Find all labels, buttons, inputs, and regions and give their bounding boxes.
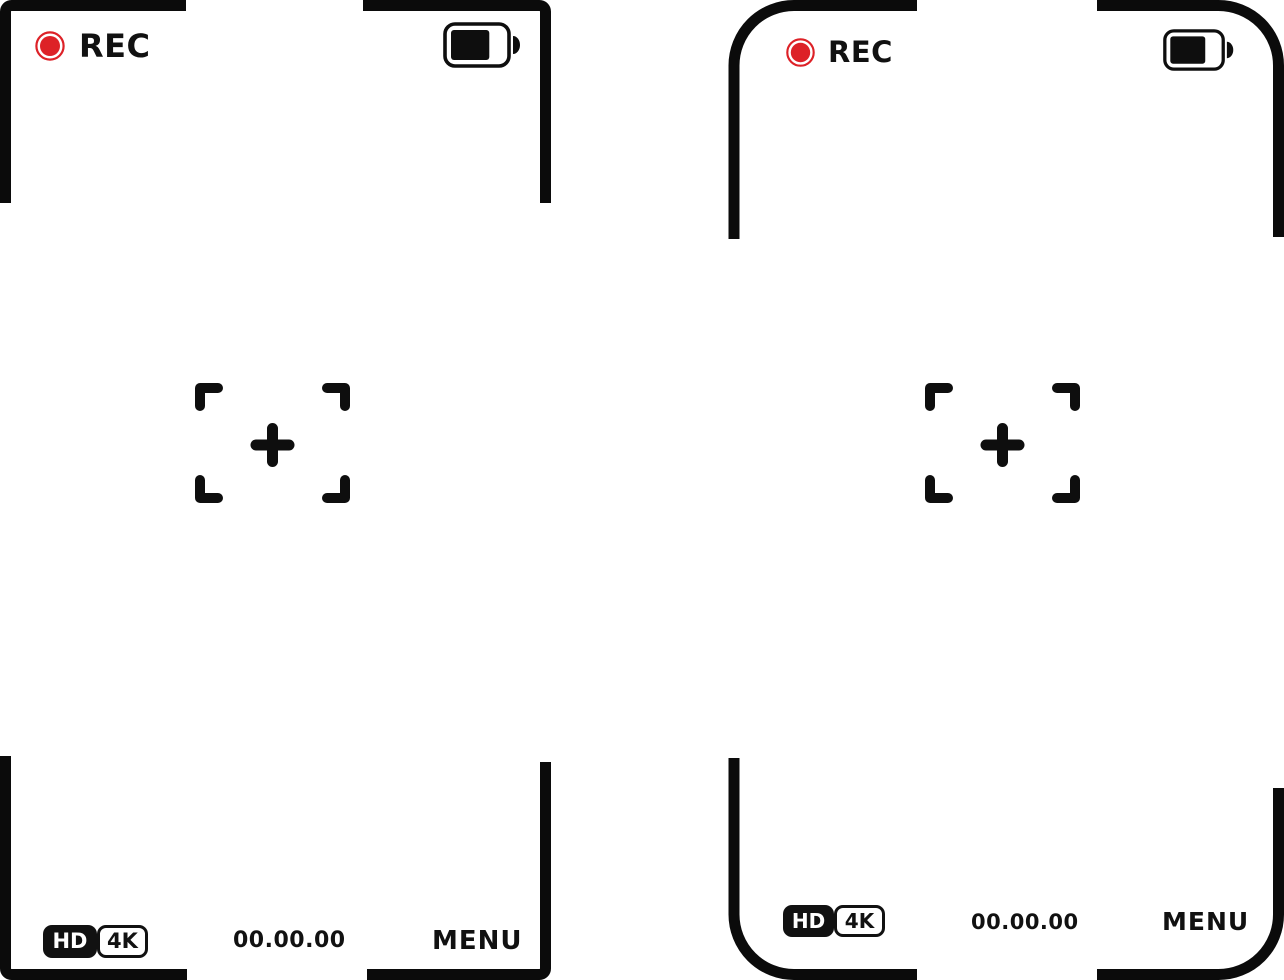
menu-button[interactable]: MENU <box>432 928 523 954</box>
camera-viewfinder-canvas: REC HD 4K 00.00.00 <box>0 0 1284 980</box>
focus-plus-icon <box>256 429 289 462</box>
focus-frame <box>925 383 1080 503</box>
focus-plus-icon <box>986 429 1019 462</box>
resolution-badges: HD 4K <box>783 905 885 937</box>
record-dot-icon <box>784 36 817 69</box>
4k-badge: 4K <box>97 925 148 958</box>
resolution-badges: HD 4K <box>43 925 148 958</box>
timecode: 00.00.00 <box>971 912 1079 933</box>
record-dot-icon <box>33 29 67 63</box>
4k-badge: 4K <box>834 905 885 937</box>
rec-indicator: REC <box>33 29 150 63</box>
battery-icon <box>1163 29 1236 75</box>
viewfinder-frames <box>0 0 1284 980</box>
menu-button[interactable]: MENU <box>1162 909 1249 934</box>
hd-badge: HD <box>43 925 97 958</box>
battery-icon <box>443 22 523 72</box>
rec-indicator: REC <box>784 36 893 69</box>
focus-frame <box>195 383 350 503</box>
rec-label: REC <box>79 30 150 62</box>
hd-badge: HD <box>783 905 834 937</box>
timecode: 00.00.00 <box>233 930 346 952</box>
rec-label: REC <box>828 38 893 67</box>
